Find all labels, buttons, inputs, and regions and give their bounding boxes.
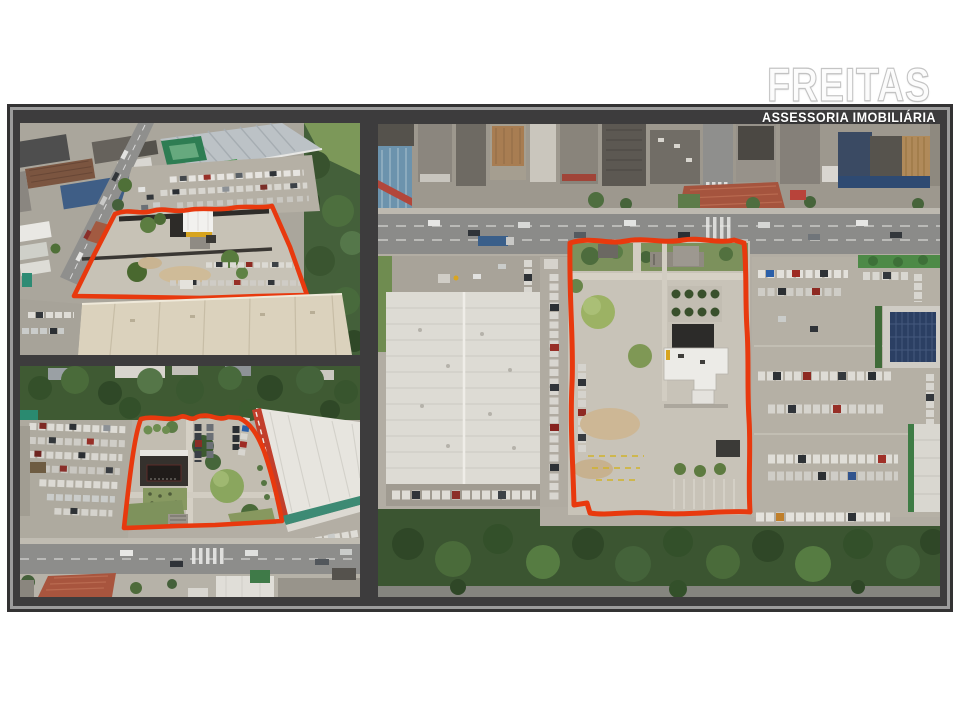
brand-tagline: ASSESSORIA IMOBILIÁRIA	[755, 109, 944, 125]
property-lot	[568, 241, 750, 515]
building-right-edge	[908, 424, 940, 512]
left-block	[378, 256, 568, 507]
aerial-photo-top-left	[20, 123, 360, 355]
parking-left	[20, 420, 132, 544]
white-warehouse	[386, 292, 540, 484]
trees-top	[20, 366, 360, 421]
real-estate-slide: { "logo": { "brand": "FREITAS", "tagline…	[0, 0, 960, 720]
solar-panel-roof	[875, 306, 940, 368]
warehouse-bottom	[78, 294, 352, 355]
street-bottom	[20, 538, 360, 574]
brand-name: FREITAS	[765, 61, 933, 108]
aerial-photo-bottom-left	[20, 366, 360, 597]
apron-bottom-left	[20, 299, 82, 355]
parking-right	[752, 255, 940, 534]
teal-sign	[22, 273, 32, 287]
buildings-top	[378, 124, 940, 220]
brand-logo: FREITAS ASSESSORIA IMOBILIÁRIA	[744, 61, 954, 125]
aerial-photo-right	[378, 124, 940, 597]
sports-court	[161, 136, 207, 165]
main-building	[140, 450, 188, 486]
